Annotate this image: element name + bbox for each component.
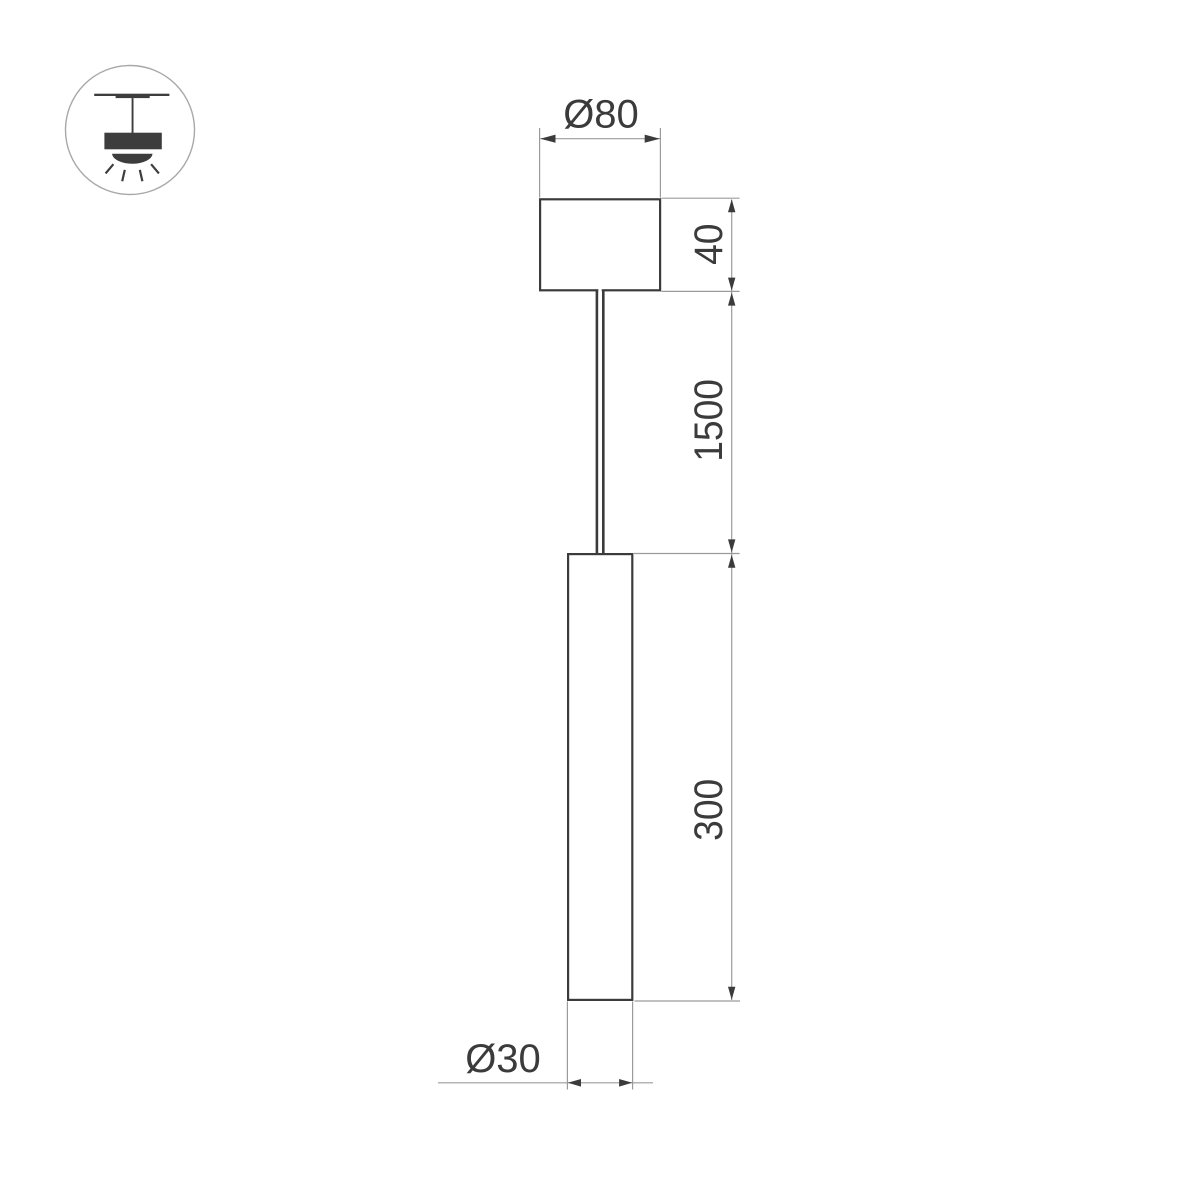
- svg-text:Ø80: Ø80: [563, 93, 639, 137]
- svg-text:300: 300: [687, 779, 732, 841]
- svg-text:1500: 1500: [687, 379, 732, 462]
- svg-text:40: 40: [687, 224, 732, 265]
- svg-text:Ø30: Ø30: [465, 1037, 541, 1081]
